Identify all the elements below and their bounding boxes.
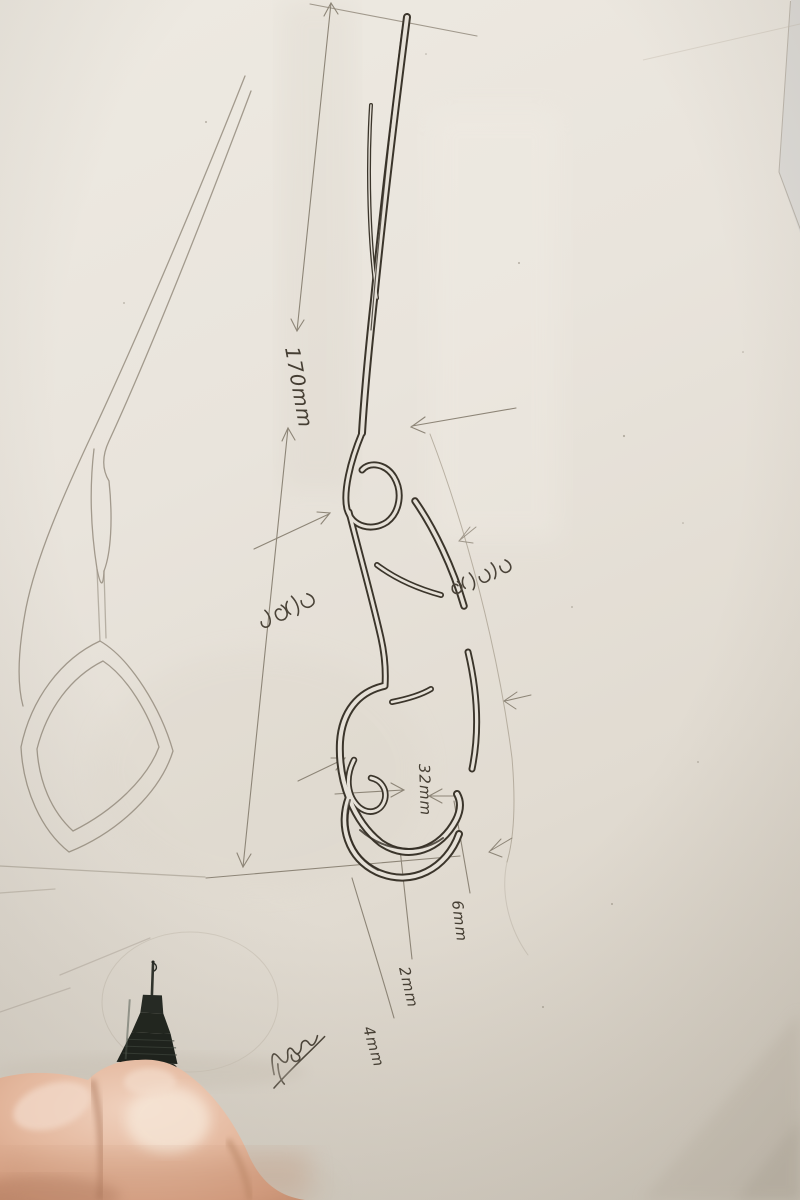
fingertip-highlight — [124, 1068, 176, 1096]
pen-needle-tip — [152, 964, 153, 995]
sketch-photo-canvas: 170mm 32mm 6mm 2mm 4mm — [0, 0, 800, 1200]
vignette — [0, 0, 800, 1200]
photograph: 170mm 32mm 6mm 2mm 4mm — [0, 0, 800, 1200]
knuckle-highlight — [126, 1086, 210, 1154]
pen-tip-section — [140, 995, 164, 1014]
